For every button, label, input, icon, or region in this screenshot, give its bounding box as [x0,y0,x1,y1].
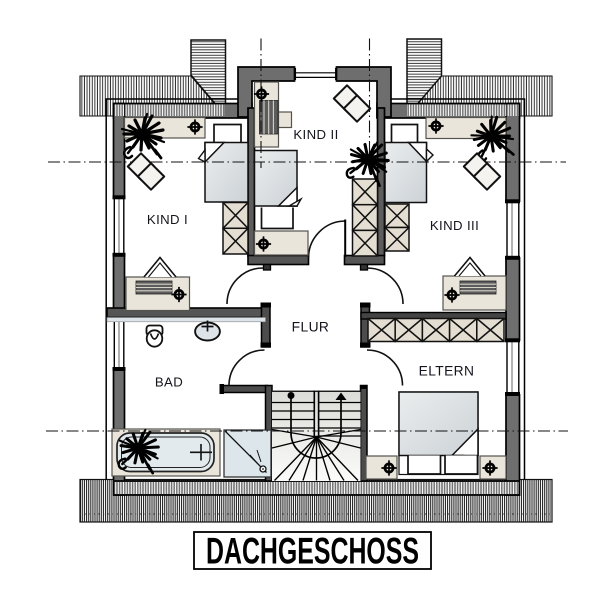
svg-text:DACHGESCHOSS: DACHGESCHOSS [206,531,419,572]
svg-text:FLUR: FLUR [292,320,330,335]
svg-text:BAD: BAD [155,375,183,390]
svg-text:ELTERN: ELTERN [419,364,475,379]
svg-text:KIND I: KIND I [147,212,188,227]
svg-text:KIND II: KIND II [293,127,338,142]
svg-text:KIND III: KIND III [430,218,479,233]
